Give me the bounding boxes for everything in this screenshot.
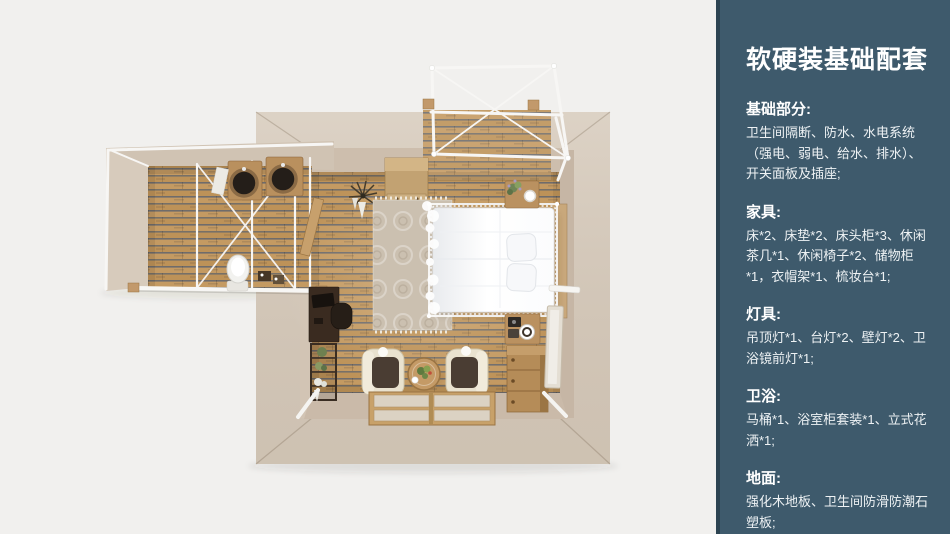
- section-basics-heading: 基础部分:: [746, 98, 934, 119]
- pillow-top: [506, 233, 536, 261]
- sink-left: [231, 170, 257, 196]
- balcony: [423, 63, 571, 180]
- vanity-mirror: [545, 306, 564, 389]
- bathroom-left-wall: [106, 148, 148, 291]
- sidebar-title: 软硬装基础配套: [746, 40, 934, 76]
- section-basics: 基础部分: 卫生间隔断、防水、水电系统（强电、弱电、给水、排水）、开关面板及插座…: [746, 98, 934, 185]
- section-furniture-body: 床*2、床垫*2、床头柜*3、休闲茶几*1、休闲椅子*2、储物柜*1，衣帽架*1…: [746, 226, 934, 288]
- duvet: [433, 208, 554, 312]
- section-lighting-body: 吊顶灯*1、台灯*2、壁灯*2、卫浴镜前灯*1;: [746, 328, 934, 369]
- armchair-right: [446, 346, 488, 396]
- table-lamp-top: [525, 191, 536, 202]
- section-flooring-body: 强化木地板、卫生间防滑防潮石塑板;: [746, 492, 934, 533]
- section-basics-body: 卫生间隔断、防水、水电系统（强电、弱电、给水、排水）、开关面板及插座;: [746, 123, 934, 185]
- desk-chair: [331, 303, 352, 329]
- floorplan-render-area: [0, 0, 717, 534]
- nightstand-top: [505, 180, 539, 209]
- spec-sidebar: 软硬装基础配套 基础部分: 卫生间隔断、防水、水电系统（强电、弱电、给水、排水）…: [716, 0, 950, 534]
- slide: 软硬装基础配套 基础部分: 卫生间隔断、防水、水电系统（强电、弱电、给水、排水）…: [0, 0, 950, 534]
- section-furniture: 家具: 床*2、床垫*2、床头柜*3、休闲茶几*1、休闲椅子*2、储物柜*1，衣…: [746, 201, 934, 288]
- section-lighting: 灯具: 吊顶灯*1、台灯*2、壁灯*2、卫浴镜前灯*1;: [746, 303, 934, 369]
- nightstand-bottom: [505, 314, 540, 344]
- bathroom: [106, 141, 334, 295]
- section-flooring: 地面: 强化木地板、卫生间防滑防潮石塑板;: [746, 467, 934, 533]
- toilet: [227, 255, 249, 291]
- dresser: [507, 346, 548, 412]
- section-furniture-heading: 家具:: [746, 201, 934, 222]
- section-bathroom: 卫浴: 马桶*1、浴室柜套装*1、立式花洒*1;: [746, 385, 934, 451]
- laptop: [311, 293, 334, 309]
- floorplan-render: [0, 0, 717, 534]
- section-flooring-heading: 地面:: [746, 467, 934, 488]
- pillow-bottom: [506, 263, 536, 291]
- sink-right: [270, 166, 296, 192]
- section-lighting-heading: 灯具:: [746, 303, 934, 324]
- bed: [422, 201, 567, 318]
- floor-windows: [369, 392, 495, 425]
- section-bathroom-body: 马桶*1、浴室柜套装*1、立式花洒*1;: [746, 410, 934, 451]
- armchair-left: [362, 347, 404, 396]
- section-bathroom-heading: 卫浴:: [746, 385, 934, 406]
- table-lamp-bottom: [520, 325, 535, 340]
